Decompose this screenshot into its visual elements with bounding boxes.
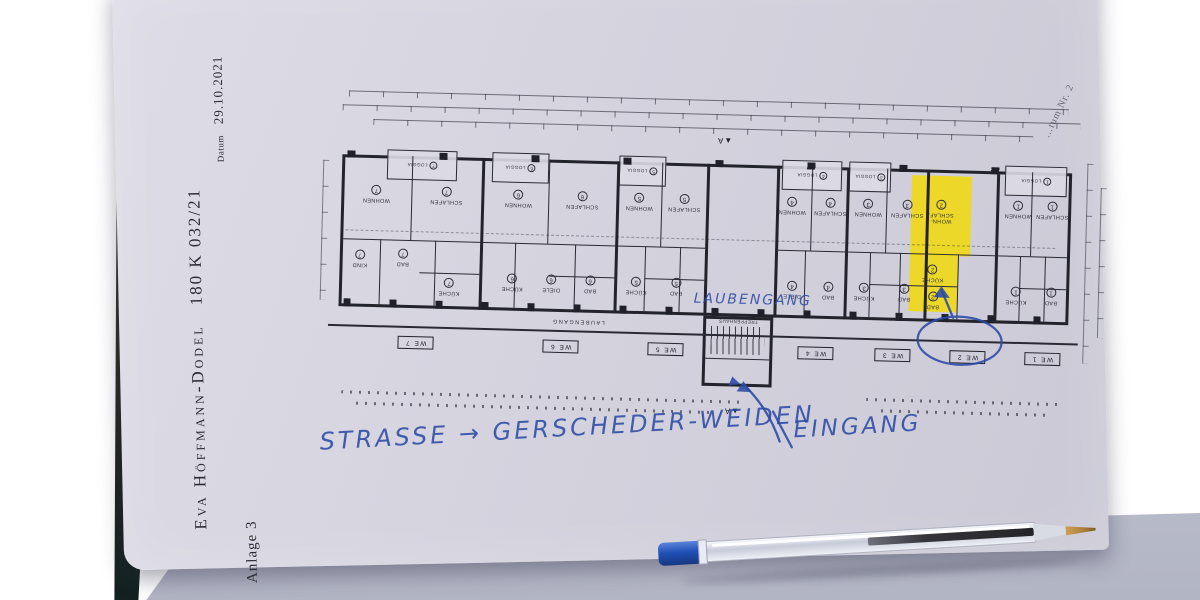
room-label: WOHNEN1 (1004, 201, 1032, 219)
we-box-4: WE 4 (797, 346, 833, 360)
room-label: WOHNEN3 (854, 199, 882, 217)
we-box-1: WE 1 (1024, 352, 1060, 366)
we-box-5: WE 5 (647, 342, 683, 356)
dimension-line (341, 390, 741, 403)
room-label: DIELE6 (542, 275, 560, 293)
room-label: SCHLAFEN1 (1036, 202, 1069, 220)
we-box-6: WE 6 (542, 340, 578, 354)
room-label: KÜCHE6 (501, 274, 523, 292)
date-label: Datum (215, 135, 226, 162)
section-triangle-icon: ▲ (724, 136, 732, 145)
room-label: WOHNEN6 (504, 190, 532, 208)
room-label: BAD6 (584, 276, 597, 294)
room-label: WOHNEN5 (625, 193, 653, 211)
room-label: KÜCHE1 (1005, 287, 1027, 305)
room-label: WOHNEN7 (362, 185, 390, 203)
laubengang-printed-label: LAUBENGANG (551, 318, 604, 325)
document-paper: Eva Höffmann-Dodel 180 K 032/21 Datum 29… (112, 0, 1109, 570)
dimension-line (1082, 164, 1093, 364)
dimension-line (866, 398, 1061, 406)
room-label: KÜCHE5 (625, 277, 647, 295)
handwritten-laubengang: LAUBENGANG (694, 291, 813, 310)
room-label: SCHLAFEN5 (668, 194, 701, 212)
margin-title: Eva Höffmann-Dodel 180 K 032/21 (182, 90, 211, 530)
date-value: 29.10.2021 (209, 56, 225, 125)
pen-tip (1065, 524, 1096, 536)
room-label: BAD1 (1044, 288, 1057, 306)
room-label: BAD2 (926, 292, 939, 310)
room-label: BAD3 (898, 284, 911, 302)
pen-taper (1033, 522, 1070, 541)
room-label: SCHLAFEN4 (814, 198, 847, 216)
floor-plan: 7LOGGIA 6LOGGIA 5LOGGIA 4LOGGIA 3LOGGIA … (320, 88, 1129, 454)
attachment-label: Anlage 3 (243, 463, 263, 583)
room-label: WOHNEN4 (778, 197, 806, 215)
we-box-3: WE 3 (874, 348, 910, 362)
room-label: SCHLAFEN7 (430, 187, 463, 205)
date-line: Datum 29.10.2021 (207, 0, 229, 162)
party-name: Eva Höffmann-Dodel (187, 324, 210, 530)
room-label: KÜCHE7 (438, 278, 460, 296)
pen-cap-end (658, 541, 701, 566)
section-marker: ▲A (718, 136, 732, 145)
room-label: KÜCHE3 (853, 283, 875, 301)
room-label: BAD5 (670, 278, 683, 296)
we-box-7: WE 7 (397, 336, 433, 350)
dimension-line (1097, 188, 1107, 338)
stair-treads (710, 326, 765, 355)
room-label: BAD4 (822, 282, 835, 300)
room-label: BAD7 (396, 249, 409, 267)
room-label: SCHLAFEN6 (566, 191, 599, 209)
room-label: KÜCHE2 (922, 265, 944, 283)
treppenhaus-label: TREPPENHAUS (719, 319, 758, 325)
highlighted-room-label: WOHN-SCHLAF.2 (923, 200, 960, 225)
case-number: 180 K 032/21 (184, 188, 205, 306)
we-box-2: WE 2 (949, 350, 985, 364)
dimension-line (320, 160, 330, 300)
room-label: KIND7 (352, 250, 367, 268)
room-label: SCHLAFEN3 (891, 200, 924, 218)
